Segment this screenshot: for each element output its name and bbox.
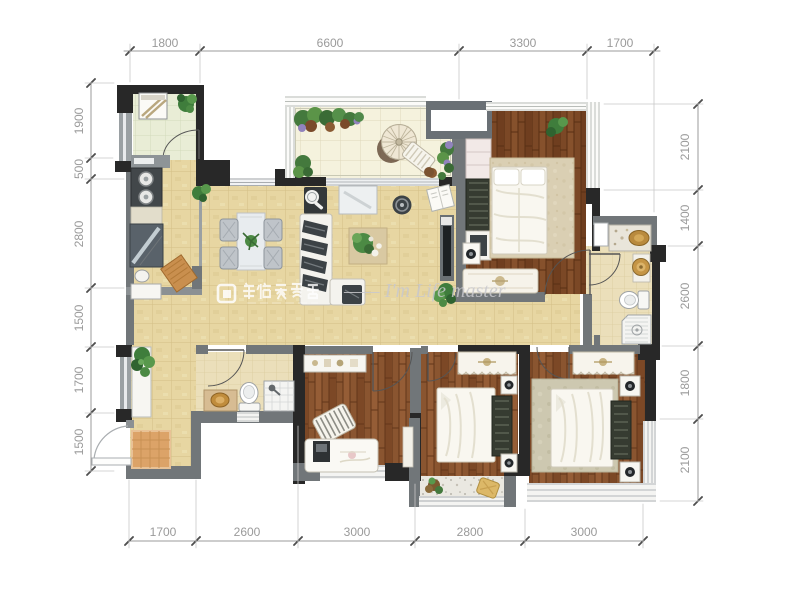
svg-text:—— I'm Life master: —— I'm Life master bbox=[343, 280, 506, 302]
svg-text:1700: 1700 bbox=[150, 525, 177, 539]
svg-text:1700: 1700 bbox=[607, 36, 634, 50]
svg-text:3000: 3000 bbox=[571, 525, 598, 539]
svg-text:1400: 1400 bbox=[678, 204, 692, 231]
svg-text:2600: 2600 bbox=[234, 525, 261, 539]
svg-text:1700: 1700 bbox=[72, 366, 86, 393]
svg-text:1500: 1500 bbox=[72, 428, 86, 455]
svg-text:2800: 2800 bbox=[457, 525, 484, 539]
svg-text:6600: 6600 bbox=[317, 36, 344, 50]
svg-text:1900: 1900 bbox=[72, 107, 86, 134]
svg-text:500: 500 bbox=[72, 159, 86, 179]
svg-text:1500: 1500 bbox=[72, 304, 86, 331]
svg-text:2600: 2600 bbox=[678, 282, 692, 309]
svg-text:2100: 2100 bbox=[678, 446, 692, 473]
svg-text:2800: 2800 bbox=[72, 220, 86, 247]
svg-text:1800: 1800 bbox=[678, 369, 692, 396]
svg-text:1800: 1800 bbox=[152, 36, 179, 50]
svg-text:3000: 3000 bbox=[344, 525, 371, 539]
svg-text:3300: 3300 bbox=[510, 36, 537, 50]
svg-text:2100: 2100 bbox=[678, 133, 692, 160]
